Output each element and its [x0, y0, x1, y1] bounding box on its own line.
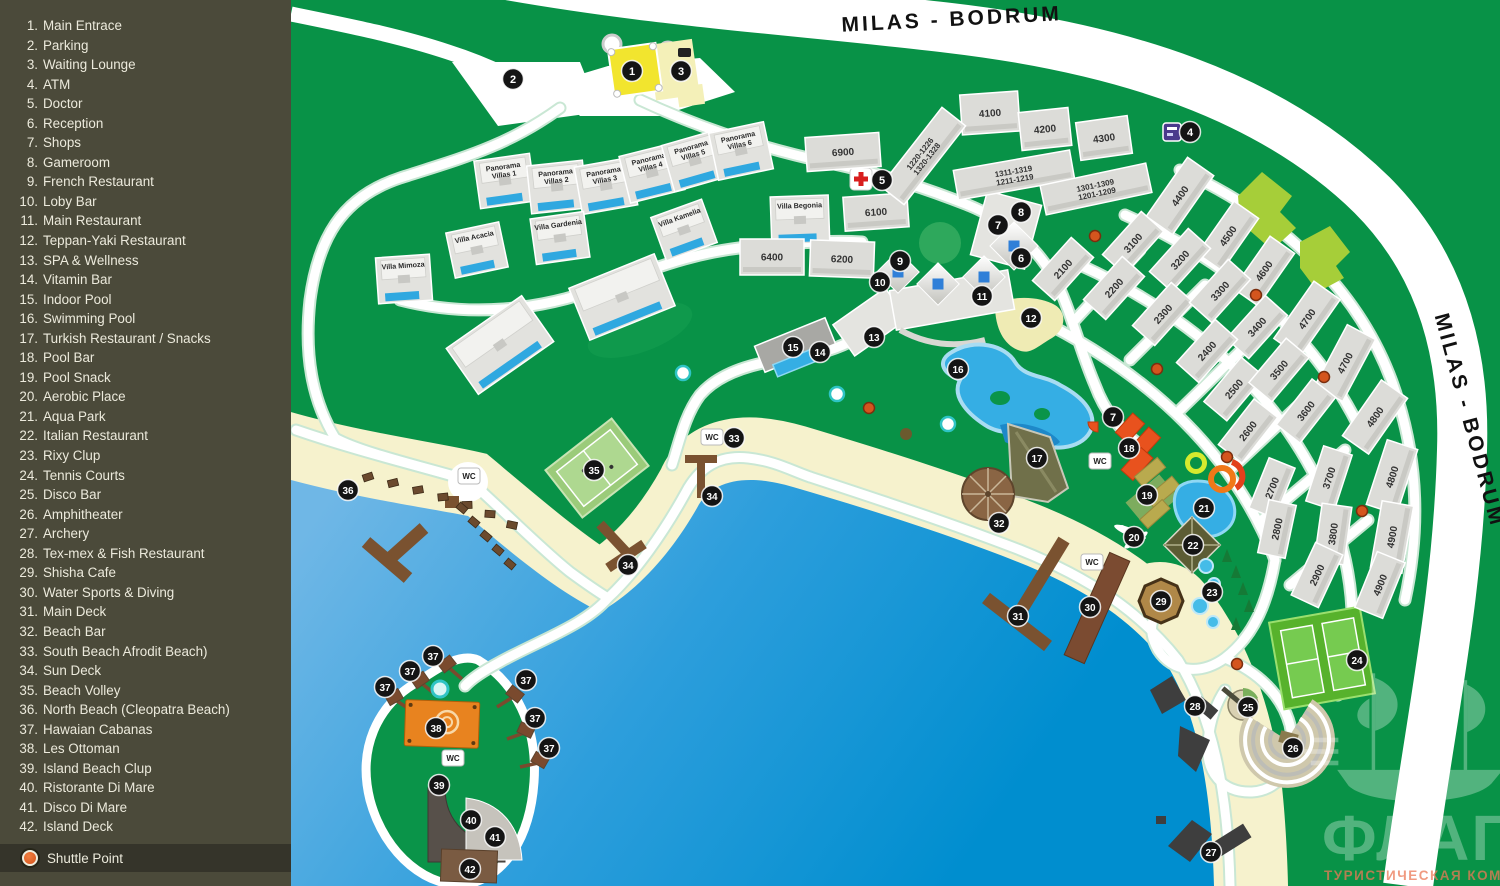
- shuttle-point-icon: [22, 850, 38, 866]
- legend-item-number: 41.: [0, 798, 38, 818]
- svg-text:22: 22: [1187, 541, 1199, 552]
- svg-text:10: 10: [874, 278, 886, 289]
- svg-text:37: 37: [529, 714, 541, 725]
- legend-item-label: Archery: [43, 524, 89, 544]
- legend-item-number: 15.: [0, 290, 38, 310]
- legend-item-number: 24.: [0, 466, 38, 486]
- building-6200: 6200: [809, 240, 874, 278]
- wc-badge: WC: [458, 468, 480, 484]
- legend-item-label: South Beach Afrodit Beach): [43, 642, 208, 662]
- villa-villa-begonia: Villa Begonia: [770, 195, 830, 245]
- building-4100: 4100: [960, 91, 1021, 135]
- map-marker-11[interactable]: 11: [972, 286, 993, 307]
- legend-item-6[interactable]: 6.Reception: [0, 114, 291, 134]
- building-label: 6900: [832, 147, 855, 160]
- legend-item-8[interactable]: 8.Gameroom: [0, 153, 291, 173]
- shuttle-stop-dot: [864, 403, 875, 414]
- legend-item-3[interactable]: 3.Waiting Lounge: [0, 55, 291, 75]
- legend-item-42[interactable]: 42.Island Deck: [0, 817, 291, 837]
- legend-item-number: 6.: [0, 114, 38, 134]
- legend-item-number: 21.: [0, 407, 38, 427]
- legend-sidebar: 1.Main Entrace2.Parking3.Waiting Lounge4…: [0, 0, 291, 886]
- map-marker-7[interactable]: 7: [1103, 407, 1124, 428]
- legend-item-5[interactable]: 5.Doctor: [0, 94, 291, 114]
- svg-text:8: 8: [1018, 207, 1024, 219]
- villa-villa-mimoza: Villa Mimoza: [375, 254, 432, 304]
- map-marker-7[interactable]: 7: [988, 215, 1009, 236]
- legend-item-label: Gameroom: [43, 153, 110, 173]
- legend-item-12[interactable]: 12.Teppan-Yaki Restaurant: [0, 231, 291, 251]
- legend-item-label: Les Ottoman: [43, 739, 120, 759]
- legend-item-38[interactable]: 38.Les Ottoman: [0, 739, 291, 759]
- legend-item-9[interactable]: 9.French Restaurant: [0, 172, 291, 192]
- svg-text:7: 7: [1110, 412, 1116, 424]
- legend-item-label: Turkish Restaurant / Snacks: [43, 329, 211, 349]
- legend-item-label: Shops: [43, 133, 81, 153]
- legend-item-26[interactable]: 26.Amphitheater: [0, 505, 291, 525]
- legend-item-2[interactable]: 2.Parking: [0, 36, 291, 56]
- legend-item-label: Loby Bar: [43, 192, 97, 212]
- map-marker-40[interactable]: 40: [461, 810, 482, 831]
- legend-item-11[interactable]: 11.Main Restaurant: [0, 211, 291, 231]
- map-marker-33[interactable]: 33: [724, 428, 745, 449]
- svg-text:14: 14: [814, 348, 826, 359]
- legend-item-28[interactable]: 28.Tex-mex & Fish Restaurant: [0, 544, 291, 564]
- svg-text:24: 24: [1351, 656, 1363, 667]
- legend-item-label: Beach Bar: [43, 622, 106, 642]
- legend-item-label: SPA & Wellness: [43, 251, 139, 271]
- legend-item-number: 22.: [0, 426, 38, 446]
- svg-text:17: 17: [1031, 454, 1043, 465]
- map-marker-30[interactable]: 30: [1080, 597, 1101, 618]
- svg-text:26: 26: [1287, 744, 1299, 755]
- map-marker-12[interactable]: 12: [1021, 308, 1042, 329]
- legend-item-label: Swimming Pool: [43, 309, 135, 329]
- svg-text:7: 7: [995, 220, 1001, 232]
- legend-item-number: 29.: [0, 563, 38, 583]
- svg-text:3: 3: [678, 66, 684, 78]
- legend-item-10[interactable]: 10.Loby Bar: [0, 192, 291, 212]
- shuttle-stop-dot: [1319, 372, 1330, 383]
- map-marker-21[interactable]: 21: [1194, 498, 1215, 519]
- wc-badge: WC: [701, 429, 723, 445]
- legend-item-label: Beach Volley: [43, 681, 120, 701]
- svg-text:1: 1: [629, 66, 635, 78]
- legend-item-label: Water Sports & Diving: [43, 583, 174, 603]
- legend-item-number: 28.: [0, 544, 38, 564]
- legend-item-label: Aerobic Place: [43, 387, 126, 407]
- legend-item-34[interactable]: 34.Sun Deck: [0, 661, 291, 681]
- legend-item-33[interactable]: 33.South Beach Afrodit Beach): [0, 642, 291, 662]
- svg-text:6: 6: [1018, 253, 1024, 265]
- legend-item-label: Island Deck: [43, 817, 113, 837]
- legend-item-number: 1.: [0, 16, 38, 36]
- map-marker-31[interactable]: 31: [1008, 606, 1029, 627]
- villa-label: Villa Begonia: [777, 200, 823, 211]
- svg-text:23: 23: [1206, 588, 1218, 599]
- svg-text:41: 41: [489, 833, 501, 844]
- map-marker-24[interactable]: 24: [1347, 650, 1368, 671]
- legend-item-number: 12.: [0, 231, 38, 251]
- map-marker-3[interactable]: 3: [671, 61, 692, 82]
- legend-item-15[interactable]: 15.Indoor Pool: [0, 290, 291, 310]
- shuttle-point-row: Shuttle Point: [0, 844, 291, 872]
- building-label: 4100: [979, 108, 1002, 121]
- map-marker-37[interactable]: 37: [375, 677, 396, 698]
- wc-badge: WC: [442, 750, 464, 766]
- legend-item-37[interactable]: 37.Hawaian Cabanas: [0, 720, 291, 740]
- svg-text:38: 38: [430, 724, 442, 735]
- legend-item-25[interactable]: 25.Disco Bar: [0, 485, 291, 505]
- map-marker-15[interactable]: 15: [783, 337, 804, 358]
- building-label: 6400: [761, 253, 784, 264]
- resort-map-page: PanoramaVillas 1PanoramaVillas 2Panorama…: [0, 0, 1500, 886]
- svg-text:WC: WC: [446, 754, 460, 763]
- svg-text:WC: WC: [705, 433, 719, 442]
- svg-text:WC: WC: [1093, 457, 1107, 466]
- legend-item-number: 3.: [0, 55, 38, 75]
- shuttle-stop-dot: [1357, 506, 1368, 517]
- map-marker-25[interactable]: 25: [1238, 697, 1259, 718]
- svg-text:34: 34: [622, 561, 634, 572]
- lawn-circle: [919, 222, 961, 264]
- legend-item-24[interactable]: 24.Tennis Courts: [0, 466, 291, 486]
- fountain-icon: [676, 366, 690, 380]
- map-marker-32[interactable]: 32: [989, 513, 1010, 534]
- svg-text:42: 42: [464, 865, 476, 876]
- svg-text:37: 37: [543, 744, 555, 755]
- map-marker-10[interactable]: 10: [870, 272, 891, 293]
- fountain-icon: [432, 681, 448, 697]
- legend-item-number: 36.: [0, 700, 38, 720]
- map-marker-13[interactable]: 13: [864, 327, 885, 348]
- legend-item-1[interactable]: 1.Main Entrace: [0, 16, 291, 36]
- svg-text:39: 39: [433, 781, 445, 792]
- svg-text:28: 28: [1189, 702, 1201, 713]
- svg-text:11: 11: [977, 292, 988, 303]
- villa-panorama-villas-1: PanoramaVillas 1: [474, 153, 536, 208]
- legend-item-label: Tennis Courts: [43, 466, 125, 486]
- legend-item-number: 17.: [0, 329, 38, 349]
- legend-item-label: Disco Di Mare: [43, 798, 127, 818]
- legend-item-36[interactable]: 36.North Beach (Cleopatra Beach): [0, 700, 291, 720]
- legend-item-label: Sun Deck: [43, 661, 101, 681]
- svg-text:29: 29: [1155, 597, 1167, 608]
- svg-text:37: 37: [379, 683, 391, 694]
- map-marker-39[interactable]: 39: [429, 775, 450, 796]
- legend-item-label: Aqua Park: [43, 407, 106, 427]
- wc-badge: WC: [1081, 554, 1103, 570]
- legend-item-number: 20.: [0, 387, 38, 407]
- map-marker-37[interactable]: 37: [525, 708, 546, 729]
- legend-item-label: Tex-mex & Fish Restaurant: [43, 544, 204, 564]
- legend-item-7[interactable]: 7.Shops: [0, 133, 291, 153]
- legend-item-number: 19.: [0, 368, 38, 388]
- svg-text:27: 27: [1205, 848, 1217, 859]
- svg-text:40: 40: [465, 816, 477, 827]
- legend-item-label: Main Entrace: [43, 16, 122, 36]
- svg-text:12: 12: [1025, 314, 1037, 325]
- beach-bar-parasol: [962, 468, 1014, 520]
- legend-item-number: 23.: [0, 446, 38, 466]
- legend-item-number: 38.: [0, 739, 38, 759]
- legend-item-number: 37.: [0, 720, 38, 740]
- shuttle-stop-dot: [1232, 659, 1243, 670]
- legend-item-number: 4.: [0, 75, 38, 95]
- atm-icon: [1163, 123, 1181, 141]
- legend-item-number: 9.: [0, 172, 38, 192]
- legend-item-39[interactable]: 39.Island Beach Clup: [0, 759, 291, 779]
- svg-text:4: 4: [1187, 127, 1194, 139]
- legend-item-label: Disco Bar: [43, 485, 101, 505]
- map-marker-1[interactable]: 1: [622, 61, 643, 82]
- legend-item-label: Vitamin Bar: [43, 270, 112, 290]
- shuttle-bus-icon: [678, 48, 691, 57]
- legend-item-17[interactable]: 17.Turkish Restaurant / Snacks: [0, 329, 291, 349]
- wc-badge: WC: [1089, 453, 1111, 469]
- building-6900: 6900: [805, 132, 881, 171]
- map-marker-26[interactable]: 26: [1283, 738, 1304, 759]
- shuttle-stop-dot: [1152, 364, 1163, 375]
- legend-item-number: 16.: [0, 309, 38, 329]
- legend-item-label: Shisha Cafe: [43, 563, 116, 583]
- legend-item-27[interactable]: 27.Archery: [0, 524, 291, 544]
- svg-text:9: 9: [897, 256, 903, 268]
- map-marker-19[interactable]: 19: [1137, 485, 1158, 506]
- legend-item-16[interactable]: 16.Swimming Pool: [0, 309, 291, 329]
- map-marker-34[interactable]: 34: [702, 486, 723, 507]
- legend-item-label: Pool Snack: [43, 368, 111, 388]
- villa-villa-gardenia: Villa Gardenia: [530, 211, 590, 264]
- legend-item-number: 25.: [0, 485, 38, 505]
- map-marker-37[interactable]: 37: [400, 661, 421, 682]
- logo-subtitle: ТУРИСТИЧЕСКАЯ КОМПАНИЯ: [1324, 868, 1500, 883]
- legend-item-label: Doctor: [43, 94, 82, 114]
- legend-item-number: 31.: [0, 602, 38, 622]
- legend-item-number: 32.: [0, 622, 38, 642]
- map-marker-9[interactable]: 9: [890, 251, 911, 272]
- legend-item-label: Pool Bar: [43, 348, 94, 368]
- legend-item-21[interactable]: 21.Aqua Park: [0, 407, 291, 427]
- svg-text:20: 20: [1128, 533, 1140, 544]
- svg-text:36: 36: [342, 486, 354, 497]
- legend-item-number: 7.: [0, 133, 38, 153]
- legend-item-30[interactable]: 30.Water Sports & Diving: [0, 583, 291, 603]
- fountain-icon: [830, 387, 844, 401]
- map-marker-38[interactable]: 38: [426, 718, 447, 739]
- legend-item-number: 26.: [0, 505, 38, 525]
- svg-text:31: 31: [1012, 612, 1024, 623]
- legend-item-35[interactable]: 35.Beach Volley: [0, 681, 291, 701]
- map-marker-5[interactable]: 5: [872, 170, 893, 191]
- legend-item-number: 27.: [0, 524, 38, 544]
- map-marker-4[interactable]: 4: [1180, 122, 1201, 143]
- legend-item-41[interactable]: 41.Disco Di Mare: [0, 798, 291, 818]
- legend-item-number: 13.: [0, 251, 38, 271]
- legend-item-29[interactable]: 29.Shisha Cafe: [0, 563, 291, 583]
- svg-text:32: 32: [993, 519, 1005, 530]
- map-marker-36[interactable]: 36: [338, 480, 359, 501]
- svg-text:33: 33: [728, 434, 740, 445]
- map-marker-2[interactable]: 2: [503, 69, 524, 90]
- logo-title: ФЛАГМАН: [1322, 802, 1500, 874]
- legend-item-label: Waiting Lounge: [43, 55, 136, 75]
- map-marker-41[interactable]: 41: [485, 827, 506, 848]
- legend-list: 1.Main Entrace2.Parking3.Waiting Lounge4…: [0, 0, 291, 837]
- map-marker-27[interactable]: 27: [1201, 842, 1222, 863]
- map-marker-6[interactable]: 6: [1011, 248, 1032, 269]
- legend-item-number: 2.: [0, 36, 38, 56]
- building-label: 6200: [831, 254, 854, 266]
- svg-text:25: 25: [1242, 703, 1254, 714]
- svg-text:WC: WC: [1085, 558, 1099, 567]
- map-marker-42[interactable]: 42: [460, 859, 481, 880]
- svg-text:37: 37: [404, 667, 416, 678]
- legend-item-label: Parking: [43, 36, 88, 56]
- legend-item-label: Main Restaurant: [43, 211, 141, 231]
- map-marker-29[interactable]: 29: [1151, 591, 1172, 612]
- building-label: 6100: [865, 207, 888, 220]
- map-marker-37[interactable]: 37: [539, 738, 560, 759]
- legend-item-31[interactable]: 31.Main Deck: [0, 602, 291, 622]
- map-marker-22[interactable]: 22: [1183, 535, 1204, 556]
- building-4200: 4200: [1018, 107, 1072, 150]
- svg-text:15: 15: [787, 343, 799, 354]
- map-marker-37[interactable]: 37: [516, 670, 537, 691]
- legend-item-label: Hawaian Cabanas: [43, 720, 152, 740]
- legend-item-label: Amphitheater: [43, 505, 123, 525]
- map-marker-28[interactable]: 28: [1185, 696, 1206, 717]
- legend-item-number: 35.: [0, 681, 38, 701]
- map-marker-34[interactable]: 34: [618, 555, 639, 576]
- legend-item-label: Reception: [43, 114, 103, 134]
- svg-text:WC: WC: [462, 472, 476, 481]
- legend-item-number: 11.: [0, 211, 38, 231]
- legend-item-label: Indoor Pool: [43, 290, 112, 310]
- legend-item-number: 8.: [0, 153, 38, 173]
- svg-text:37: 37: [520, 676, 532, 687]
- svg-text:13: 13: [868, 333, 880, 344]
- legend-item-number: 34.: [0, 661, 38, 681]
- map-marker-23[interactable]: 23: [1202, 582, 1223, 603]
- legend-item-label: ATM: [43, 75, 70, 95]
- svg-text:35: 35: [588, 466, 600, 477]
- shuttle-stop-dot: [1222, 452, 1233, 463]
- doctor-icon: [850, 168, 872, 190]
- legend-item-label: Teppan-Yaki Restaurant: [43, 231, 186, 251]
- legend-item-number: 10.: [0, 192, 38, 212]
- tree: [900, 428, 912, 440]
- map-marker-16[interactable]: 16: [948, 359, 969, 380]
- svg-text:19: 19: [1141, 491, 1153, 502]
- building-6400: 6400: [740, 239, 804, 275]
- legend-item-number: 39.: [0, 759, 38, 779]
- map-marker-18[interactable]: 18: [1119, 438, 1140, 459]
- legend-item-number: 14.: [0, 270, 38, 290]
- legend-item-32[interactable]: 32.Beach Bar: [0, 622, 291, 642]
- svg-text:2: 2: [510, 74, 516, 86]
- legend-item-4[interactable]: 4.ATM: [0, 75, 291, 95]
- legend-item-13[interactable]: 13.SPA & Wellness: [0, 251, 291, 271]
- svg-text:34: 34: [706, 492, 718, 503]
- fountain-icon: [941, 417, 955, 431]
- svg-text:21: 21: [1198, 504, 1210, 515]
- legend-item-label: Italian Restaurant: [43, 426, 148, 446]
- legend-item-number: 33.: [0, 642, 38, 662]
- svg-text:37: 37: [427, 652, 439, 663]
- legend-item-23[interactable]: 23.Rixy Clup: [0, 446, 291, 466]
- legend-item-number: 42.: [0, 817, 38, 837]
- legend-item-14[interactable]: 14.Vitamin Bar: [0, 270, 291, 290]
- legend-item-18[interactable]: 18.Pool Bar: [0, 348, 291, 368]
- map-marker-8[interactable]: 8: [1011, 202, 1032, 223]
- svg-text:30: 30: [1084, 603, 1096, 614]
- legend-item-label: North Beach (Cleopatra Beach): [43, 700, 230, 720]
- legend-item-20[interactable]: 20.Aerobic Place: [0, 387, 291, 407]
- map-marker-37[interactable]: 37: [423, 646, 444, 667]
- map-marker-35[interactable]: 35: [584, 460, 605, 481]
- legend-item-label: Ristorante Di Mare: [43, 778, 155, 798]
- map-marker-17[interactable]: 17: [1027, 448, 1048, 469]
- legend-item-label: Rixy Clup: [43, 446, 100, 466]
- legend-item-label: Island Beach Clup: [43, 759, 152, 779]
- shuttle-point-label: Shuttle Point: [47, 851, 123, 866]
- shuttle-stop-dot: [1090, 231, 1101, 242]
- map-marker-14[interactable]: 14: [810, 342, 831, 363]
- svg-text:16: 16: [952, 365, 964, 376]
- map-marker-20[interactable]: 20: [1124, 527, 1145, 548]
- legend-item-label: French Restaurant: [43, 172, 154, 192]
- legend-item-number: 18.: [0, 348, 38, 368]
- legend-item-number: 5.: [0, 94, 38, 114]
- legend-item-number: 40.: [0, 778, 38, 798]
- legend-item-22[interactable]: 22.Italian Restaurant: [0, 426, 291, 446]
- building-4300: 4300: [1076, 116, 1133, 161]
- legend-item-19[interactable]: 19.Pool Snack: [0, 368, 291, 388]
- legend-item-number: 30.: [0, 583, 38, 603]
- shuttle-stop-dot: [1251, 290, 1262, 301]
- legend-item-label: Main Deck: [43, 602, 106, 622]
- legend-item-40[interactable]: 40.Ristorante Di Mare: [0, 778, 291, 798]
- svg-text:5: 5: [879, 175, 885, 187]
- svg-text:18: 18: [1123, 444, 1135, 455]
